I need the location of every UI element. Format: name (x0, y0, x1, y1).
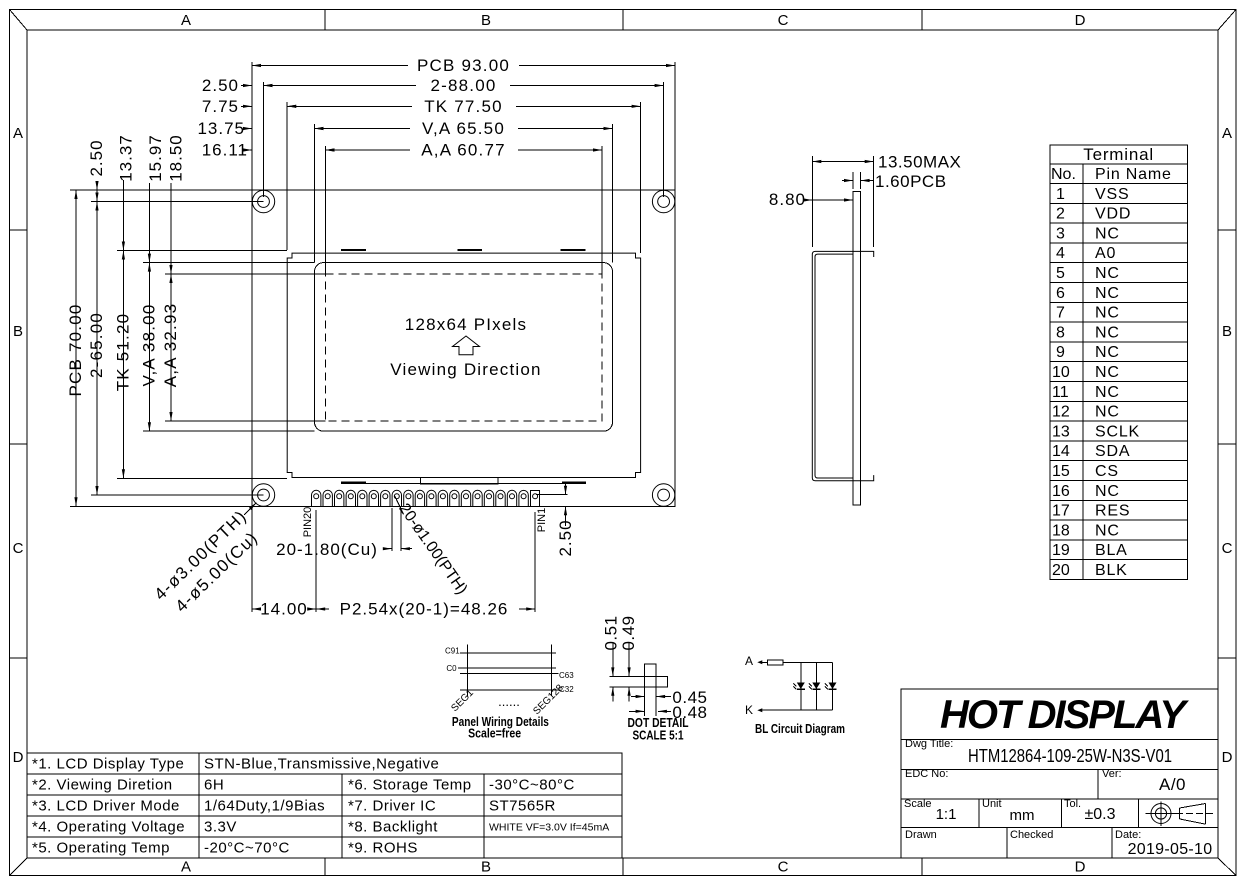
svg-text:15.97: 15.97 (146, 134, 165, 182)
svg-text:NC: NC (1095, 265, 1120, 282)
svg-text:No.: No. (1051, 166, 1076, 183)
svg-text:TK 77.50: TK 77.50 (424, 97, 503, 116)
svg-text:Terminal: Terminal (1083, 145, 1154, 164)
svg-text:18: 18 (1052, 522, 1070, 539)
svg-text:C91: C91 (445, 647, 460, 656)
svg-text:*7. Driver IC: *7. Driver IC (348, 798, 436, 815)
svg-text:*2. Viewing Diretion: *2. Viewing Diretion (32, 777, 173, 794)
svg-text:A: A (1222, 125, 1232, 142)
svg-text:C: C (13, 540, 24, 557)
svg-text:NC: NC (1095, 384, 1120, 401)
svg-text:A,A 32.93: A,A 32.93 (161, 303, 180, 388)
svg-text:TK 51.20: TK 51.20 (113, 313, 132, 392)
svg-text:NC: NC (1095, 483, 1120, 500)
svg-text:NC: NC (1095, 364, 1120, 381)
svg-text:18.50: 18.50 (167, 134, 186, 182)
svg-text:Drawn: Drawn (905, 829, 937, 841)
svg-text:2.50: 2.50 (556, 519, 575, 556)
svg-text:*1. LCD Display Type: *1. LCD Display Type (32, 756, 184, 773)
svg-text:*6. Storage Temp: *6. Storage Temp (348, 777, 472, 794)
svg-text:NC: NC (1095, 285, 1120, 302)
svg-text:C: C (1222, 540, 1233, 557)
svg-text:Tol.: Tol. (1064, 798, 1081, 810)
svg-text:......: ...... (498, 694, 520, 709)
svg-text:mm: mm (1010, 807, 1035, 824)
svg-text:±0.3: ±0.3 (1084, 806, 1115, 823)
svg-text:BLA: BLA (1095, 542, 1128, 559)
svg-text:2-88.00: 2-88.00 (430, 76, 496, 95)
svg-text:CS: CS (1095, 463, 1119, 480)
svg-text:WHITE VF=3.0V If=45mA: WHITE VF=3.0V If=45mA (489, 822, 609, 834)
svg-text:1/64Duty,1/9Bias: 1/64Duty,1/9Bias (204, 798, 325, 815)
svg-text:13.75: 13.75 (197, 119, 245, 138)
svg-text:P2.54x(20-1)=48.26: P2.54x(20-1)=48.26 (340, 600, 509, 619)
svg-text:D: D (1075, 859, 1086, 876)
svg-text:K: K (745, 703, 753, 717)
svg-text:13: 13 (1052, 423, 1070, 440)
svg-text:C: C (778, 859, 789, 876)
svg-text:B: B (481, 859, 491, 876)
svg-text:*4. Operating Voltage: *4. Operating Voltage (32, 819, 185, 836)
svg-text:14: 14 (1052, 443, 1070, 460)
svg-text:A/0: A/0 (1159, 775, 1186, 794)
svg-text:Pin Name: Pin Name (1095, 166, 1172, 183)
svg-text:VDD: VDD (1095, 206, 1131, 223)
svg-text:-30°C~80°C: -30°C~80°C (489, 777, 575, 794)
svg-text:*3. LCD Driver Mode: *3. LCD Driver Mode (32, 798, 180, 815)
svg-text:7: 7 (1056, 305, 1065, 322)
svg-text:9: 9 (1056, 344, 1065, 361)
svg-text:12: 12 (1052, 404, 1070, 421)
svg-text:NC: NC (1095, 305, 1120, 322)
svg-text:A,A 60.77: A,A 60.77 (421, 141, 506, 160)
svg-text:1.60PCB: 1.60PCB (875, 172, 947, 191)
svg-text:*8. Backlight: *8. Backlight (348, 819, 438, 836)
svg-text:19: 19 (1052, 542, 1070, 559)
svg-text:2.50: 2.50 (202, 76, 239, 95)
svg-text:ST7565R: ST7565R (489, 798, 556, 815)
svg-text:STN-Blue,Transmissive,Negative: STN-Blue,Transmissive,Negative (204, 756, 439, 773)
svg-text:6: 6 (1056, 285, 1065, 302)
svg-text:D: D (1222, 749, 1233, 766)
svg-text:BL Circuit Diagram: BL Circuit Diagram (755, 721, 845, 736)
svg-text:B: B (481, 12, 491, 29)
svg-text:B: B (1222, 323, 1232, 340)
svg-text:SCLK: SCLK (1095, 423, 1140, 440)
svg-text:A: A (745, 654, 753, 668)
svg-text:A0: A0 (1095, 245, 1116, 262)
svg-text:13.37: 13.37 (117, 134, 136, 182)
svg-text:A: A (13, 125, 23, 142)
svg-text:BLK: BLK (1095, 562, 1128, 579)
svg-text:20-1.80(Cu): 20-1.80(Cu) (276, 540, 378, 559)
svg-text:D: D (1075, 12, 1086, 29)
svg-text:8: 8 (1056, 324, 1065, 341)
svg-text:C: C (778, 12, 789, 29)
svg-text:B: B (13, 323, 23, 340)
svg-text:PCB 93.00: PCB 93.00 (417, 56, 510, 75)
svg-text:1: 1 (1056, 186, 1065, 203)
svg-text:2019-05-10: 2019-05-10 (1128, 841, 1213, 858)
svg-text:Ver:: Ver: (1102, 768, 1122, 780)
svg-text:PCB 70.00: PCB 70.00 (66, 303, 85, 396)
svg-text:NC: NC (1095, 522, 1120, 539)
svg-text:Scale: Scale (904, 798, 932, 810)
svg-text:Unit: Unit (982, 798, 1002, 810)
svg-text:2.50: 2.50 (87, 139, 106, 176)
svg-text:RES: RES (1095, 503, 1130, 520)
svg-text:8.80: 8.80 (769, 190, 806, 209)
svg-text:VSS: VSS (1095, 186, 1129, 203)
svg-text:4: 4 (1056, 245, 1065, 262)
svg-text:7.75: 7.75 (202, 97, 239, 116)
svg-text:PIN20: PIN20 (302, 507, 314, 538)
svg-text:NC: NC (1095, 344, 1120, 361)
svg-text:C0: C0 (446, 664, 457, 673)
svg-text:A: A (181, 859, 191, 876)
svg-text:*5. Operating Temp: *5. Operating Temp (32, 840, 170, 857)
svg-text:11: 11 (1052, 384, 1069, 401)
svg-text:A: A (181, 12, 191, 29)
svg-text:5: 5 (1056, 265, 1065, 282)
svg-text:*9. ROHS: *9. ROHS (348, 840, 418, 857)
svg-text:SCALE 5:1: SCALE 5:1 (633, 727, 684, 742)
svg-text:128x64 PIxels: 128x64 PIxels (405, 315, 527, 334)
svg-text:1:1: 1:1 (936, 806, 957, 823)
svg-text:Dwg Title:: Dwg Title: (905, 738, 953, 750)
svg-text:D: D (13, 749, 24, 766)
svg-text:2-65.00: 2-65.00 (87, 312, 106, 378)
svg-text:-20°C~70°C: -20°C~70°C (204, 840, 290, 857)
svg-text:HTM12864-109-25W-N3S-V01: HTM12864-109-25W-N3S-V01 (968, 746, 1172, 766)
svg-text:13.50MAX: 13.50MAX (878, 153, 961, 172)
svg-text:3: 3 (1056, 225, 1065, 242)
svg-text:SDA: SDA (1095, 443, 1130, 460)
svg-text:PIN1: PIN1 (536, 508, 548, 532)
svg-text:NC: NC (1095, 225, 1120, 242)
svg-text:0.49: 0.49 (619, 615, 638, 650)
svg-text:20: 20 (1052, 562, 1070, 579)
svg-text:V,A 38.00: V,A 38.00 (139, 304, 158, 387)
svg-text:Date:: Date: (1115, 829, 1141, 841)
svg-text:Scale=free: Scale=free (468, 726, 521, 741)
svg-text:16: 16 (1052, 483, 1070, 500)
svg-text:V,A 65.50: V,A 65.50 (422, 119, 505, 138)
svg-text:17: 17 (1052, 503, 1070, 520)
svg-text:HOT DISPLAY: HOT DISPLAY (940, 693, 1189, 737)
svg-text:16.11: 16.11 (202, 141, 248, 160)
svg-text:NC: NC (1095, 404, 1120, 421)
svg-text:EDC No:: EDC No: (905, 768, 948, 780)
svg-text:2: 2 (1056, 206, 1065, 223)
svg-text:Viewing Direction: Viewing Direction (390, 360, 541, 379)
svg-text:3.3V: 3.3V (204, 819, 237, 836)
svg-text:C63: C63 (559, 671, 574, 680)
svg-text:Checked: Checked (1010, 829, 1053, 841)
svg-text:15: 15 (1052, 463, 1070, 480)
svg-text:14.00: 14.00 (260, 600, 308, 619)
svg-text:NC: NC (1095, 324, 1120, 341)
svg-text:6H: 6H (204, 777, 224, 794)
svg-text:10: 10 (1052, 364, 1070, 381)
